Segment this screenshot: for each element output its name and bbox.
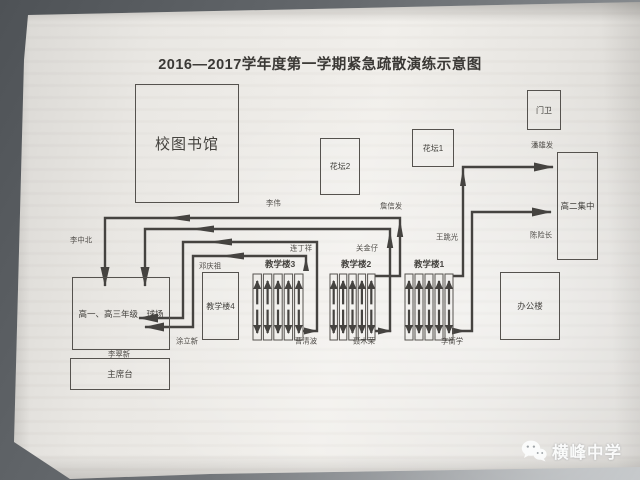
label-gate-house: 门卫 (536, 105, 552, 116)
box-flower-bed-2: 花坛2 (320, 138, 360, 195)
box-flower-bed-1: 花坛1 (412, 129, 454, 167)
box-grade2-assembly: 高二集中 (557, 152, 598, 260)
post-li-cuixin: 李翠新 (108, 351, 130, 358)
label-teaching-building-3: 教学楼3 (265, 260, 295, 269)
watermark-school-name: 横峰中学 (552, 439, 622, 463)
label-flower-bed-1: 花坛1 (423, 143, 443, 154)
post-li-zhongbei: 李中北 (70, 237, 92, 244)
post-deng-qingzu: 邓庆祖 (199, 263, 221, 270)
evacuation-routes-layer (0, 0, 640, 480)
route-building1-top-to-assembly (453, 167, 553, 276)
label-flower-bed-2: 花坛2 (330, 161, 350, 172)
post-cao-qingbo: 曹清波 (295, 338, 317, 345)
label-office-building: 办公楼 (517, 300, 543, 312)
post-li-wei: 李伟 (266, 200, 281, 207)
box-gate-house: 门卫 (527, 90, 561, 130)
box-teaching-building-4: 教学楼4 (202, 272, 239, 340)
label-library: 校图书馆 (155, 133, 219, 154)
label-teaching-building-4: 教学楼4 (206, 301, 234, 312)
paper-sheet: 2016—2017学年度第一学期紧急疏散演练示意图 (0, 0, 640, 480)
post-wang-tiaoguang: 王跳光 (436, 234, 458, 241)
label-teaching-building-1: 教学楼1 (414, 260, 444, 269)
box-office-building: 办公楼 (500, 272, 560, 340)
label-playground: 高一、高三年级 球场 (78, 308, 163, 320)
photo-backdrop: 2016—2017学年度第一学期紧急疏散演练示意图 (0, 0, 640, 480)
post-tu-lixin: 涂立新 (176, 338, 198, 345)
post-guan-jinzai: 关金仔 (356, 245, 378, 252)
box-playground: 高一、高三年级 球场 (72, 277, 170, 350)
box-library: 校图书馆 (135, 84, 239, 203)
post-lian-dingxiang: 连丁祥 (290, 245, 312, 252)
label-rostrum: 主席台 (107, 368, 133, 380)
post-zhan-xinfa: 詹信发 (380, 203, 402, 210)
post-li-hengxue: 李衡学 (441, 338, 463, 345)
post-chen-xianzhang: 陈险长 (530, 232, 552, 239)
post-pan-xiongfa: 潘雄发 (531, 142, 553, 149)
wechat-icon (521, 440, 547, 462)
label-grade2-assembly: 高二集中 (560, 200, 594, 212)
post-nie-murong: 聂木荣 (353, 338, 375, 345)
box-rostrum: 主席台 (70, 358, 170, 390)
label-teaching-building-2: 教学楼2 (341, 260, 371, 269)
watermark: 横峰中学 (521, 438, 622, 464)
